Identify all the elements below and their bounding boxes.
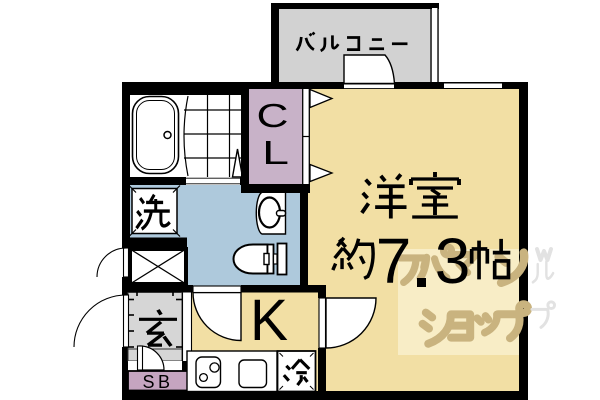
svg-text:3: 3 — [435, 225, 471, 297]
svg-text:SB: SB — [142, 372, 173, 392]
svg-text:C: C — [257, 97, 289, 134]
svg-text:K: K — [250, 288, 288, 353]
svg-text:7: 7 — [376, 225, 412, 297]
svg-text:L: L — [262, 134, 289, 171]
